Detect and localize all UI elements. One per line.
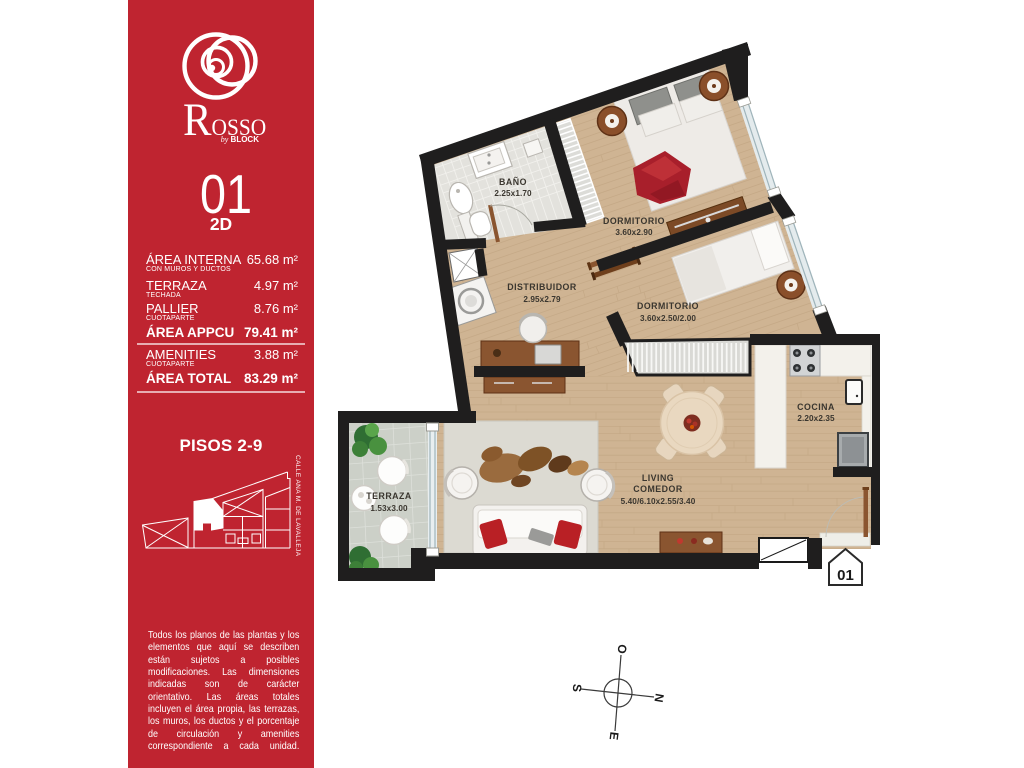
svg-text:O: O [614,644,629,655]
svg-text:5.40/6.10x2.55/3.40: 5.40/6.10x2.55/3.40 [621,497,696,506]
svg-text:TERRAZA: TERRAZA [366,491,412,501]
svg-text:DORMITORIO: DORMITORIO [637,301,699,311]
svg-text:01: 01 [837,567,854,584]
svg-text:2.25x1.70: 2.25x1.70 [494,189,532,198]
svg-text:1.53x3.00: 1.53x3.00 [370,504,408,513]
svg-text:LIVING: LIVING [642,473,674,483]
svg-text:E: E [607,731,622,741]
svg-text:BAÑO: BAÑO [499,177,527,187]
svg-text:COMEDOR: COMEDOR [633,484,683,494]
svg-text:2.20x2.35: 2.20x2.35 [797,414,835,423]
svg-text:DORMITORIO: DORMITORIO [603,216,665,226]
svg-text:2.95x2.79: 2.95x2.79 [523,295,561,304]
svg-text:3.60x2.90: 3.60x2.90 [615,228,653,237]
svg-text:S: S [570,683,585,692]
svg-text:DISTRIBUIDOR: DISTRIBUIDOR [507,282,577,292]
svg-text:3.60x2.50/2.00: 3.60x2.50/2.00 [640,314,696,323]
svg-text:COCINA: COCINA [797,402,835,412]
